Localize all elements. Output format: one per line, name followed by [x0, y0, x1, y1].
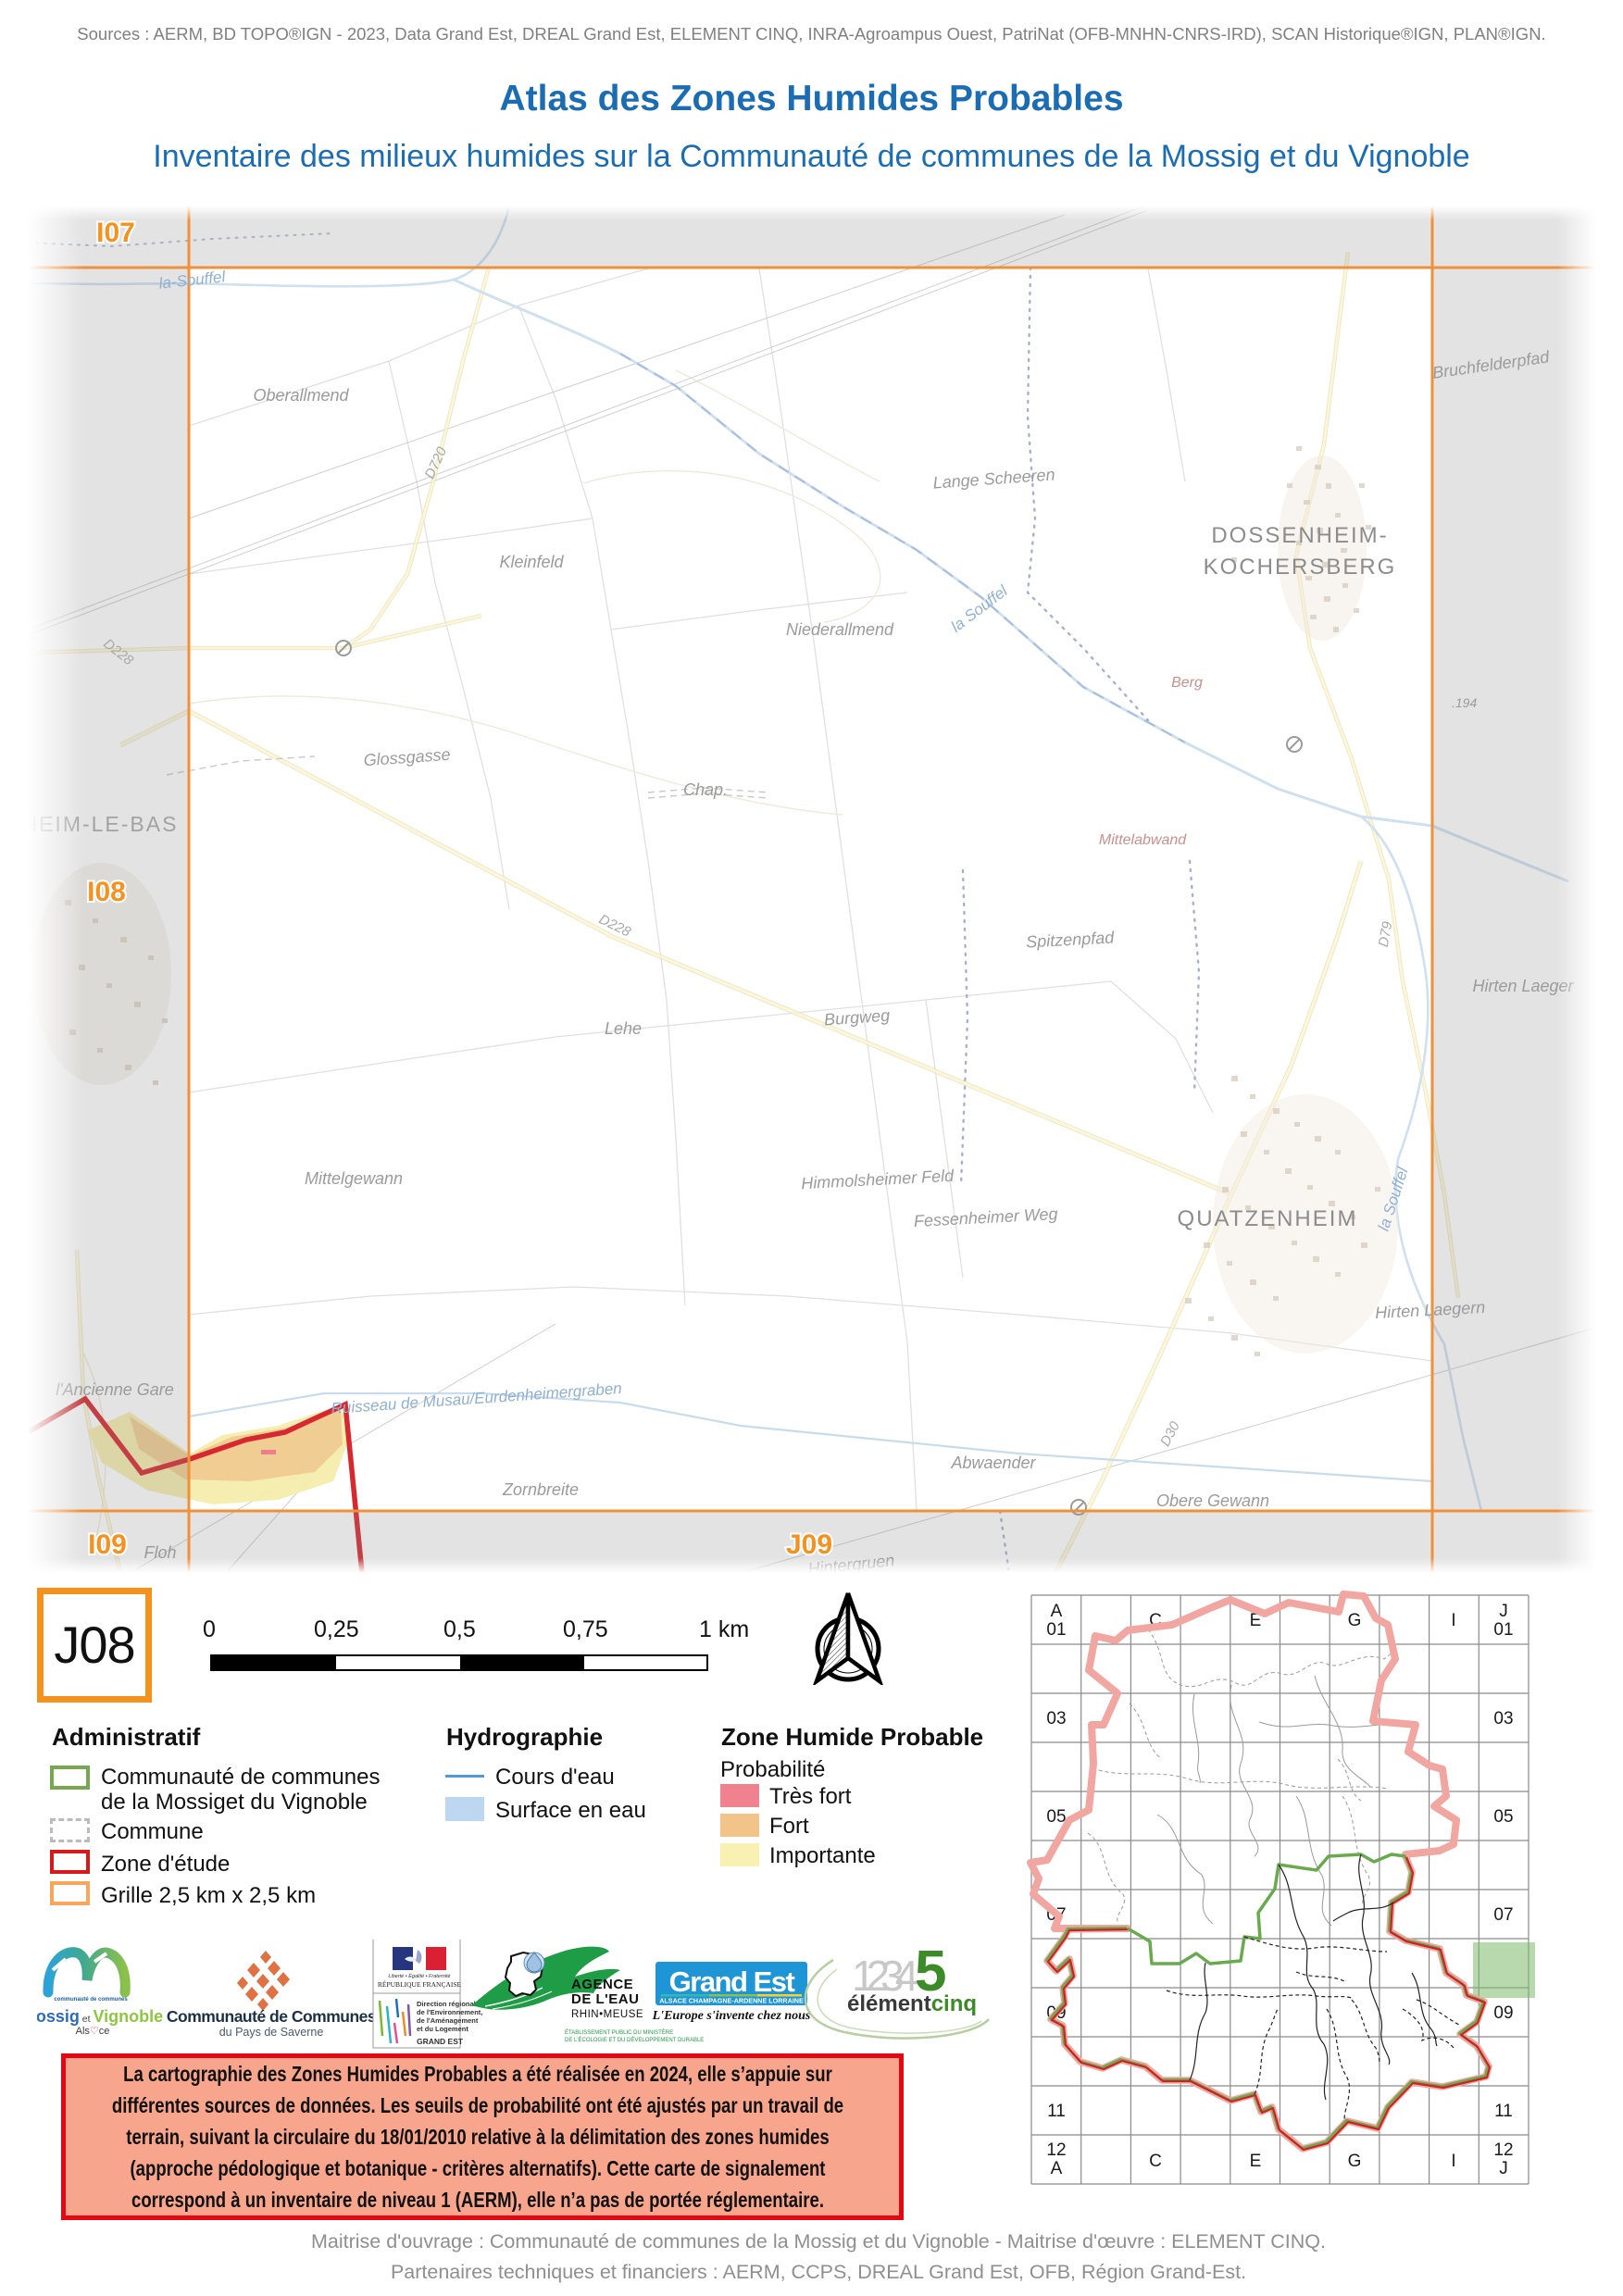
svg-text:AGENCE: AGENCE [571, 1977, 633, 1992]
svg-text:12: 12 [1493, 2140, 1513, 2160]
svg-text:Oberallmend: Oberallmend [253, 386, 349, 405]
svg-text:11: 11 [1047, 2102, 1066, 2121]
svg-text:01: 01 [1046, 1620, 1066, 1640]
svg-text:G: G [1348, 2152, 1362, 2171]
svg-text:12: 12 [1046, 2140, 1066, 2160]
svg-text:J: J [1499, 1602, 1508, 1621]
svg-text:Mittelgewann: Mittelgewann [305, 1169, 403, 1188]
svg-text:Mossig et Vignoble: Mossig et Vignoble [37, 2007, 163, 2026]
svg-text:Niederallmend: Niederallmend [786, 620, 894, 639]
svg-text:03: 03 [1493, 1709, 1513, 1728]
svg-text:Chap.: Chap. [683, 780, 728, 799]
svg-text:05: 05 [1493, 1807, 1513, 1827]
svg-text:Mittelabwand: Mittelabwand [1099, 832, 1187, 848]
svg-text:du Pays de Saverne: du Pays de Saverne [219, 2026, 324, 2039]
svg-text:Direction régionale: Direction régionale [417, 2000, 480, 2008]
svg-text:RÉPUBLIQUE FRANÇAISE: RÉPUBLIQUE FRANÇAISE [378, 1979, 462, 1989]
svg-text:11: 11 [1494, 2102, 1513, 2121]
svg-text:G: G [1348, 1611, 1362, 1630]
svg-text:I07: I07 [96, 218, 135, 248]
svg-text:09: 09 [1493, 2003, 1513, 2023]
svg-text:RHIN•MEUSE: RHIN•MEUSE [571, 2009, 643, 2020]
svg-text:DE L'EAU: DE L'EAU [571, 1991, 639, 2007]
svg-text:et du Logement: et du Logement [417, 2025, 468, 2033]
svg-text:A: A [1051, 1602, 1063, 1621]
svg-text:Obere Gewann: Obere Gewann [1156, 1491, 1269, 1510]
svg-text:de l'Environnement,: de l'Environnement, [417, 2008, 482, 2016]
svg-text:E: E [1250, 2152, 1262, 2171]
svg-text:01: 01 [1493, 1620, 1513, 1640]
svg-text:Communauté de Communes: Communauté de Communes [167, 2007, 377, 2026]
svg-text:J09: J09 [786, 1529, 832, 1560]
svg-text:GRAND EST: GRAND EST [417, 2037, 464, 2046]
svg-text:Kleinfeld: Kleinfeld [499, 553, 564, 571]
svg-text:KOCHERSBERG: KOCHERSBERG [1204, 555, 1397, 580]
svg-text:J: J [1499, 2159, 1508, 2178]
svg-text:L'Europe s'invente chez nous: L'Europe s'invente chez nous [652, 2009, 811, 2023]
svg-text:I08: I08 [87, 877, 126, 907]
svg-text:Abwaender: Abwaender [950, 1454, 1036, 1472]
svg-text:.194: .194 [1452, 695, 1477, 710]
svg-text:ALSACE CHAMPAGNE-ARDENNE LORRA: ALSACE CHAMPAGNE-ARDENNE LORRAINE [659, 1997, 804, 2005]
svg-text:07: 07 [1493, 1905, 1513, 1925]
svg-text:Liberté • Égalité • Fraternité: Liberté • Égalité • Fraternité [388, 1973, 450, 1979]
svg-text:C: C [1149, 2152, 1162, 2171]
svg-text:communauté de communes: communauté de communes [54, 1997, 128, 2003]
svg-text:DOSSENHEIM-: DOSSENHEIM- [1211, 523, 1388, 548]
svg-text:I: I [1451, 2152, 1455, 2171]
svg-text:Grand Est: Grand Est [669, 1965, 795, 1998]
svg-text:élémentcinq: élémentcinq [847, 1991, 977, 2016]
svg-text:Lehe: Lehe [605, 1019, 642, 1038]
svg-text:I: I [1451, 1611, 1455, 1630]
svg-text:A: A [1051, 2159, 1063, 2178]
svg-text:Berg: Berg [1171, 675, 1203, 691]
svg-text:I09: I09 [88, 1529, 127, 1560]
svg-text:Als♡ce: Als♡ce [76, 2026, 110, 2037]
svg-text:QUATZENHEIM: QUATZENHEIM [1178, 1206, 1358, 1231]
svg-text:03: 03 [1046, 1709, 1066, 1728]
svg-text:de l'Aménagement: de l'Aménagement [417, 2016, 479, 2025]
svg-text:Zornbreite: Zornbreite [502, 1480, 579, 1499]
